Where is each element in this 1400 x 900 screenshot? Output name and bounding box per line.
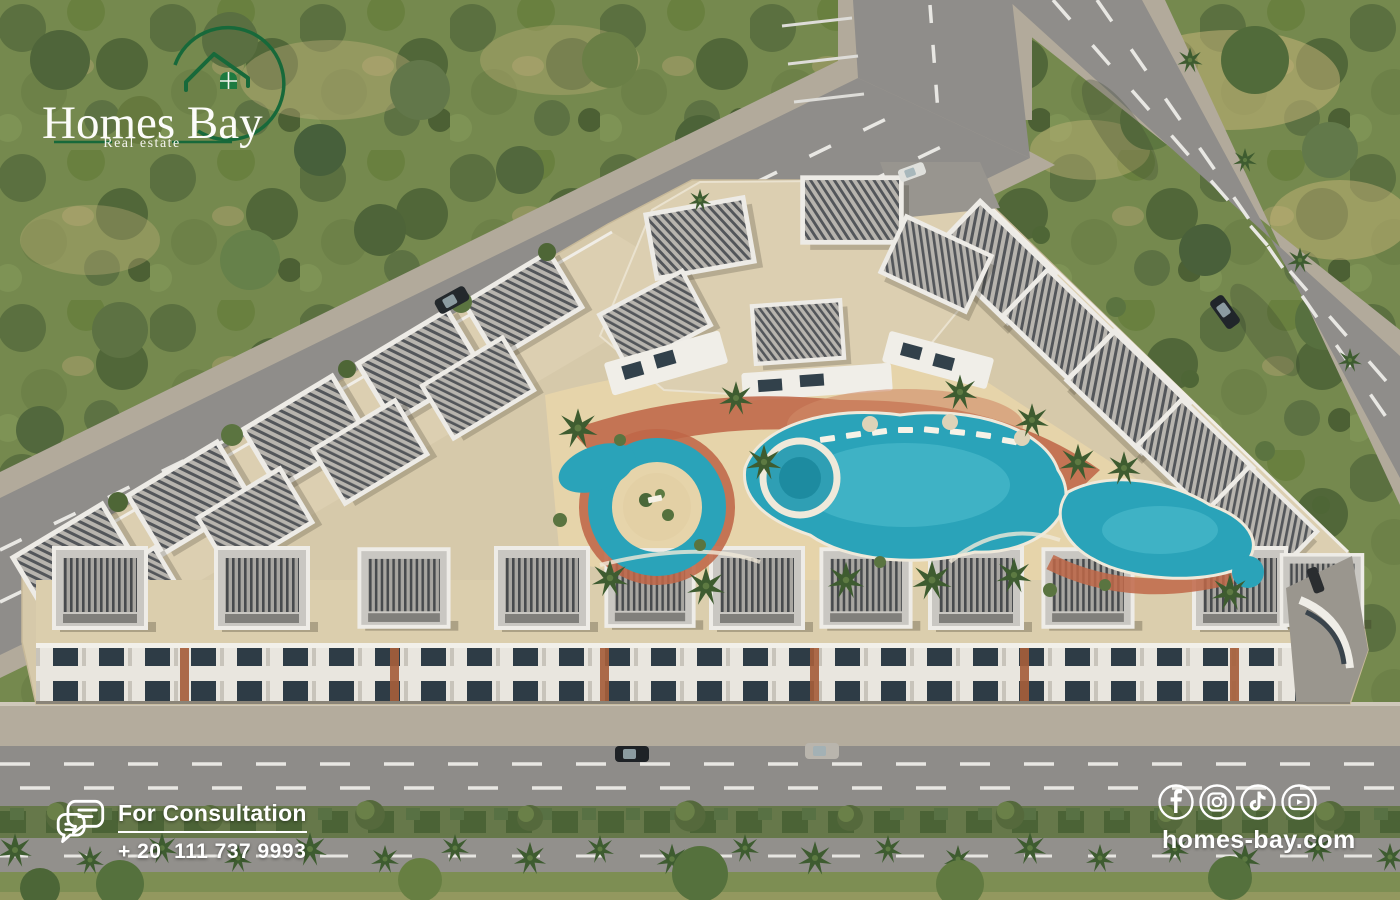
facebook-icon	[1156, 782, 1196, 822]
website-url: homes-bay.com	[1156, 826, 1356, 855]
marketing-image: ""	[0, 0, 1400, 900]
consultation-phone: + 20 111 737 9993	[118, 840, 307, 864]
brand-logo: Homes Bay Real estate	[40, 14, 310, 170]
instagram-icon	[1197, 782, 1237, 822]
tiktok-icon	[1238, 782, 1278, 822]
consultation-label: For Consultation	[118, 800, 307, 833]
social-block: homes-bay.com	[1156, 782, 1356, 855]
brand-tagline: Real estate	[103, 136, 181, 151]
consultation-block: For Consultation + 20 111 737 9993	[56, 798, 307, 864]
chat-bubbles-icon	[56, 798, 106, 846]
youtube-icon	[1279, 782, 1319, 822]
social-icon-row	[1156, 782, 1356, 822]
